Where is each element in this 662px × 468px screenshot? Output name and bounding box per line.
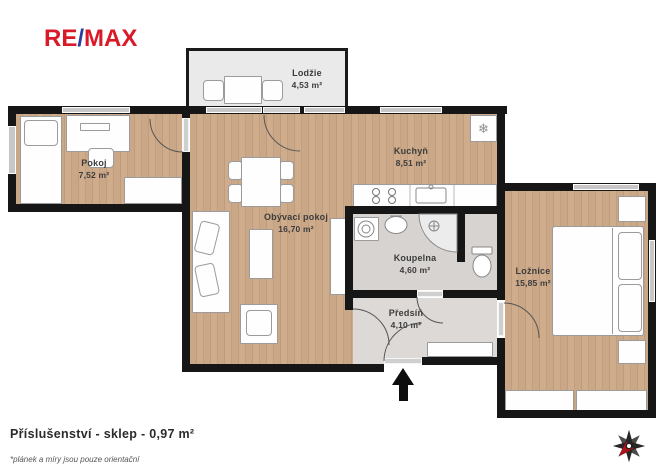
dining-table xyxy=(241,157,281,207)
room-label-lodzie: Lodžie 4,53 m² xyxy=(277,68,337,91)
remax-logo: RE/MAX xyxy=(44,27,137,51)
window xyxy=(62,107,130,113)
wardrobe xyxy=(505,390,574,411)
disclaimer-note: *plánek a míry jsou pouze orientační xyxy=(10,455,139,464)
room-area: 4,10 m² xyxy=(376,320,436,331)
wall xyxy=(497,338,505,418)
desk xyxy=(66,115,130,152)
entrance-door-leaf xyxy=(384,358,422,364)
pillow xyxy=(618,232,642,280)
window xyxy=(206,107,262,113)
room-name: Koupelna xyxy=(385,253,445,265)
cabinet xyxy=(124,177,182,204)
dining-chair xyxy=(279,161,294,180)
room-area: 7,52 m² xyxy=(64,170,124,181)
wall xyxy=(182,106,190,118)
room-label-koupelna: Koupelna 4,60 m² xyxy=(385,253,445,276)
room-label-predsin: Předsíň 4,10 m² xyxy=(376,308,436,331)
door-leaf xyxy=(183,118,189,152)
nightstand xyxy=(618,196,646,222)
wall xyxy=(443,290,505,298)
wall xyxy=(345,290,417,298)
door-leaf xyxy=(498,302,504,336)
wall xyxy=(182,364,384,372)
hall-closet xyxy=(427,342,493,357)
room-name: Kuchyň xyxy=(381,146,441,158)
accessories-note: Příslušenství - sklep - 0,97 m² xyxy=(10,427,194,441)
window xyxy=(380,107,442,113)
blanket-fold xyxy=(612,228,613,334)
pillow xyxy=(24,120,58,146)
room-name: Ložnice xyxy=(503,266,563,278)
kitchen-counter xyxy=(353,184,497,207)
pillow xyxy=(618,284,642,332)
fridge: ❄ xyxy=(470,115,497,142)
entrance-arrow-icon xyxy=(392,368,414,401)
room-area: 8,51 m² xyxy=(381,158,441,169)
desk-monitor xyxy=(80,123,110,131)
window xyxy=(304,107,345,113)
balcony-chair xyxy=(203,80,224,101)
floor-plan-page: RE/MAX ❄ xyxy=(0,0,662,468)
window xyxy=(573,184,639,190)
dining-chair xyxy=(279,184,294,203)
wall-stub-wc xyxy=(457,206,465,262)
room-area: 4,53 m² xyxy=(277,80,337,91)
wall xyxy=(182,152,190,372)
room-label-pokoj: Pokoj 7,52 m² xyxy=(64,158,124,181)
logo-max: MAX xyxy=(84,25,137,52)
room-label-obyvaci-pokoj: Obývací pokoj 16,70 m² xyxy=(246,212,346,235)
wall xyxy=(422,357,505,365)
compass-icon xyxy=(611,428,647,464)
door-leaf xyxy=(417,291,443,297)
passage-floor xyxy=(345,310,353,364)
wall xyxy=(345,206,505,214)
room-area: 4,60 m² xyxy=(385,265,445,276)
wall xyxy=(497,410,656,418)
wall xyxy=(8,204,190,212)
room-name: Předsíň xyxy=(376,308,436,320)
room-label-kuchyn: Kuchyň 8,51 m² xyxy=(381,146,441,169)
washing-machine xyxy=(354,217,379,241)
room-name: Lodžie xyxy=(277,68,337,80)
armchair-seat xyxy=(246,310,272,336)
room-name: Pokoj xyxy=(64,158,124,170)
snowflake-icon: ❄ xyxy=(478,121,489,137)
window xyxy=(649,240,655,302)
wardrobe xyxy=(576,390,647,411)
nightstand xyxy=(618,340,646,364)
door-leaf xyxy=(263,107,300,113)
room-area: 15,85 m² xyxy=(503,278,563,289)
coffee-table xyxy=(249,229,273,279)
balcony-table xyxy=(224,76,262,104)
window xyxy=(8,126,16,174)
room-area: 16,70 m² xyxy=(246,224,346,235)
room-label-loznice: Ložnice 15,85 m² xyxy=(503,266,563,289)
room-name: Obývací pokoj xyxy=(246,212,346,224)
logo-re: RE xyxy=(44,25,77,52)
logo-slash-icon: / xyxy=(77,25,84,52)
